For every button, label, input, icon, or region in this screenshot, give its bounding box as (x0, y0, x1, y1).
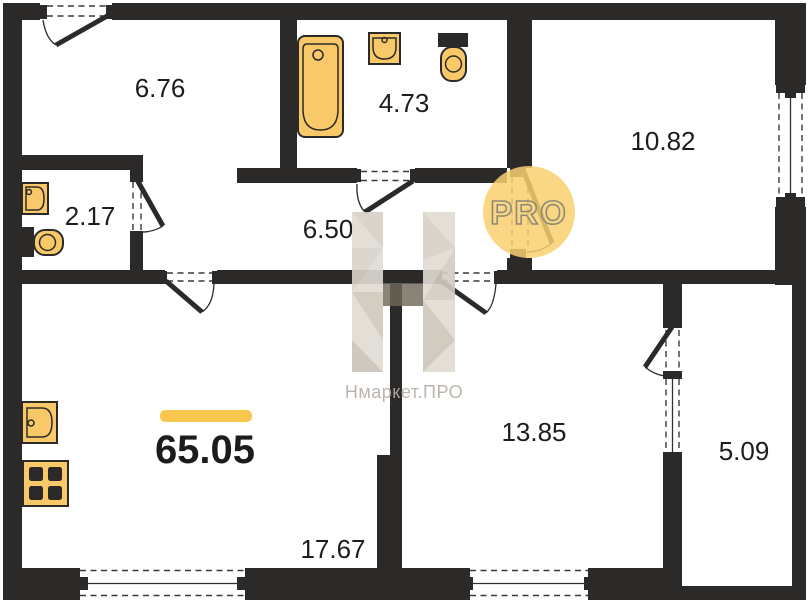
wall-segment (507, 18, 532, 168)
toilet-tank (438, 33, 468, 47)
wall-segment (217, 270, 442, 284)
pro-badge: PRO (483, 166, 575, 258)
wall-segment (3, 18, 22, 600)
wall-segment (775, 20, 806, 85)
wall-segment (588, 568, 682, 600)
wall-segment (112, 3, 806, 20)
wall-segment (415, 168, 507, 183)
stove (23, 461, 68, 506)
wall-segment (3, 270, 165, 284)
door-jamb (663, 320, 682, 328)
door-jamb (494, 271, 503, 284)
floor-plan: 6.76 4.73 2.17 6.50 10.82 13.85 17.67 5.… (0, 0, 809, 600)
window-hinge (785, 90, 796, 98)
wall-segment (682, 586, 806, 600)
area-label-bathroom: 4.73 (379, 88, 430, 118)
area-label-bedroom: 10.82 (630, 126, 695, 156)
wall-segment (3, 568, 80, 600)
wall-segment (245, 568, 470, 600)
door-jamb (38, 5, 47, 19)
wall-segment (237, 168, 357, 183)
window-hinge (463, 577, 473, 590)
stove-burner (29, 467, 43, 481)
window-hinge (79, 577, 88, 590)
total-area-block: 65.05 (155, 410, 255, 472)
stove-burner (48, 486, 62, 500)
wall-segment (3, 3, 40, 20)
wall-segment (22, 155, 143, 170)
wall-segment (377, 455, 390, 568)
bathroom-sink (369, 33, 400, 64)
bathroom-toilet (438, 33, 468, 81)
wc-sink (22, 183, 48, 214)
wall-segment (663, 460, 682, 568)
total-area-accent-bar (160, 410, 252, 422)
area-label-living-room: 13.85 (501, 417, 566, 447)
total-area-value: 65.05 (155, 428, 255, 472)
wall-segment (497, 270, 806, 284)
window-hinge (663, 452, 682, 460)
floor-plan-page: 6.76 4.73 2.17 6.50 10.82 13.85 17.67 5.… (0, 0, 809, 600)
toilet-tank (22, 227, 34, 257)
area-label-kitchen-living: 17.67 (300, 534, 365, 564)
bathtub (298, 36, 343, 137)
door-jamb (352, 169, 361, 182)
watermark-brand-text: Нмаркет.ПРО (345, 382, 463, 402)
window-hinge (584, 577, 594, 590)
wall-segment (390, 284, 402, 568)
wc-toilet (22, 227, 63, 257)
wall-segment (792, 285, 806, 600)
stove-burner (48, 467, 62, 481)
wall-segment (280, 18, 297, 168)
pro-badge-text: PRO (490, 194, 568, 231)
window-hinge (663, 371, 682, 379)
area-label-entrance-hall: 6.76 (135, 73, 186, 103)
window-hinge (785, 193, 796, 201)
door-jamb (212, 271, 221, 284)
area-label-wc: 2.17 (65, 201, 116, 231)
window-balcony-wall (663, 371, 682, 460)
area-label-corridor: 6.50 (303, 214, 354, 244)
logo-crossbar (383, 283, 423, 306)
stove-burner (29, 486, 43, 500)
toilet-bowl (34, 230, 63, 255)
area-label-balcony: 5.09 (719, 436, 770, 466)
kitchen-sink (22, 402, 57, 443)
window-hinge (237, 577, 246, 590)
wall-segment (663, 284, 682, 324)
